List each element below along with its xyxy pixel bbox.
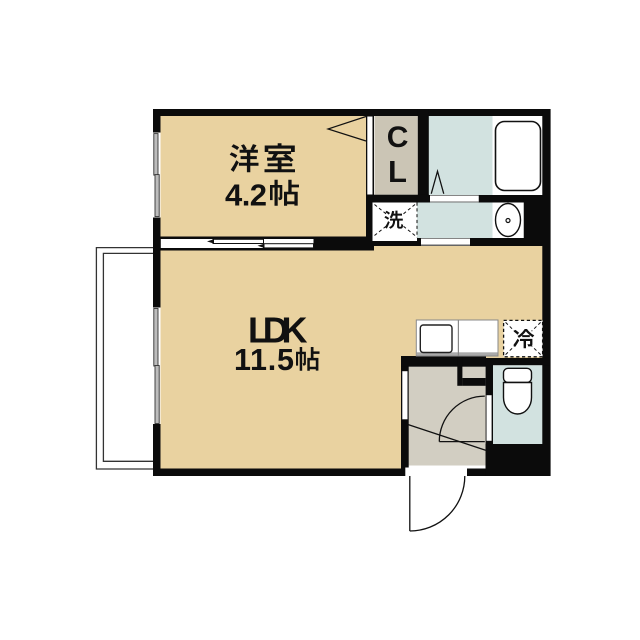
svg-text:4.2: 4.2 bbox=[225, 177, 267, 212]
svg-text:11.5: 11.5 bbox=[234, 343, 294, 377]
svg-text:L: L bbox=[388, 154, 407, 189]
svg-text:C: C bbox=[387, 121, 409, 154]
